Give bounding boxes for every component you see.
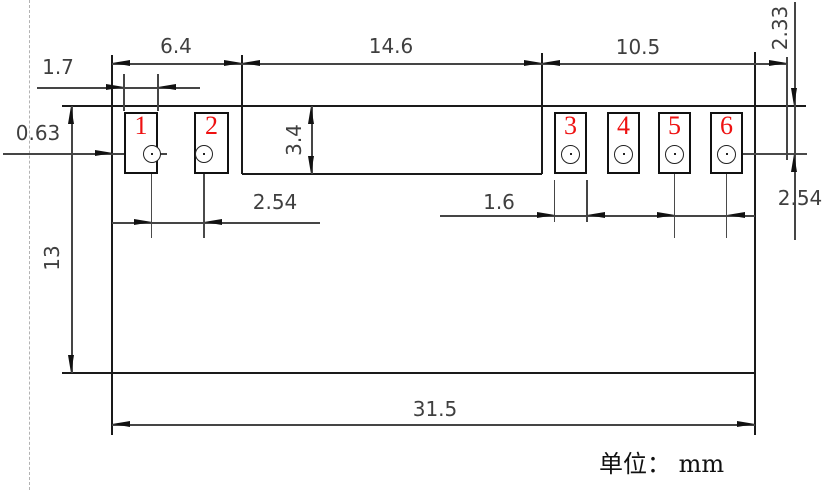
unit-note: 单位： mm (599, 451, 724, 477)
dimension-label-13: 13 (42, 245, 62, 270)
dimension-label-1.6: 1.6 (483, 192, 515, 212)
dimension-label-31.5: 31.5 (413, 399, 458, 419)
dimension-label-6.4: 6.4 (160, 36, 192, 56)
dimension-label-1.7: 1.7 (42, 57, 74, 77)
dimension-label-3.4: 3.4 (284, 124, 304, 156)
dimension-labels-layer: 6.414.610.51.70.633.42.33132.541.62.5431… (0, 0, 836, 490)
dimension-label-14.6: 14.6 (369, 36, 414, 56)
dimension-label-10.5: 10.5 (616, 37, 661, 57)
engineering-drawing: 123456 6.414.610.51.70.633.42.33132.541.… (0, 0, 836, 490)
dimension-label-0.63: 0.63 (16, 123, 61, 143)
dimension-label-2.33: 2.33 (770, 6, 790, 51)
dimension-label-2.54: 2.54 (253, 192, 298, 212)
dimension-label-2.54: 2.54 (778, 188, 823, 208)
